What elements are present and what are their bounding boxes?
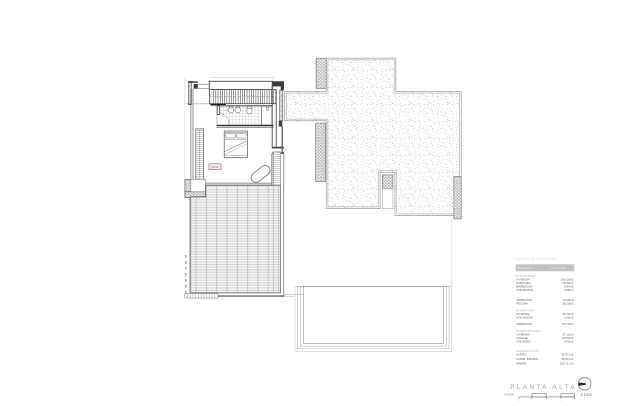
svg-text:6.08m2: 6.08m2 xyxy=(564,288,574,292)
svg-text:87.70m2: 87.70m2 xyxy=(562,322,574,326)
svg-text:ACERA: ACERA xyxy=(516,353,526,357)
svg-text:0: 0 xyxy=(519,400,520,402)
svg-text:RAMPA: RAMPA xyxy=(516,361,526,365)
svg-text:VOLADIZO: VOLADIZO xyxy=(516,340,531,344)
svg-text:5.59m2: 5.59m2 xyxy=(564,315,574,319)
svg-text:Construidas: Construidas xyxy=(550,266,567,270)
svg-text:1/100Mts: 1/100Mts xyxy=(503,392,515,396)
svg-text:Superficies: Superficies xyxy=(518,266,533,270)
svg-text:39.20m2: 39.20m2 xyxy=(562,302,574,306)
svg-text:VOLADIZOS: VOLADIZOS xyxy=(516,288,533,292)
svg-text:PLANTA ALTA: PLANTA ALTA xyxy=(510,384,577,391)
svg-text:155.71 m2: 155.71 m2 xyxy=(560,361,574,365)
svg-text:CUADRO DE SUPERFICIES: CUADRO DE SUPERFICIES xyxy=(516,257,557,261)
svg-text:VOLADIZOS: VOLADIZOS xyxy=(516,315,533,319)
svg-text:E 1/100: E 1/100 xyxy=(581,393,592,397)
svg-text:5: 5 xyxy=(574,400,575,402)
svg-text:TERRAZAS: TERRAZAS xyxy=(516,322,531,326)
svg-text:4.90m2: 4.90m2 xyxy=(564,340,574,344)
svg-text:4: 4 xyxy=(560,400,561,402)
svg-text:1: 1 xyxy=(531,400,532,402)
svg-text:D6.02: D6.02 xyxy=(212,165,219,169)
svg-text:20.41 m2: 20.41 m2 xyxy=(561,353,573,357)
svg-text:PISCINA: PISCINA xyxy=(516,302,528,306)
svg-text:3: 3 xyxy=(546,400,547,402)
